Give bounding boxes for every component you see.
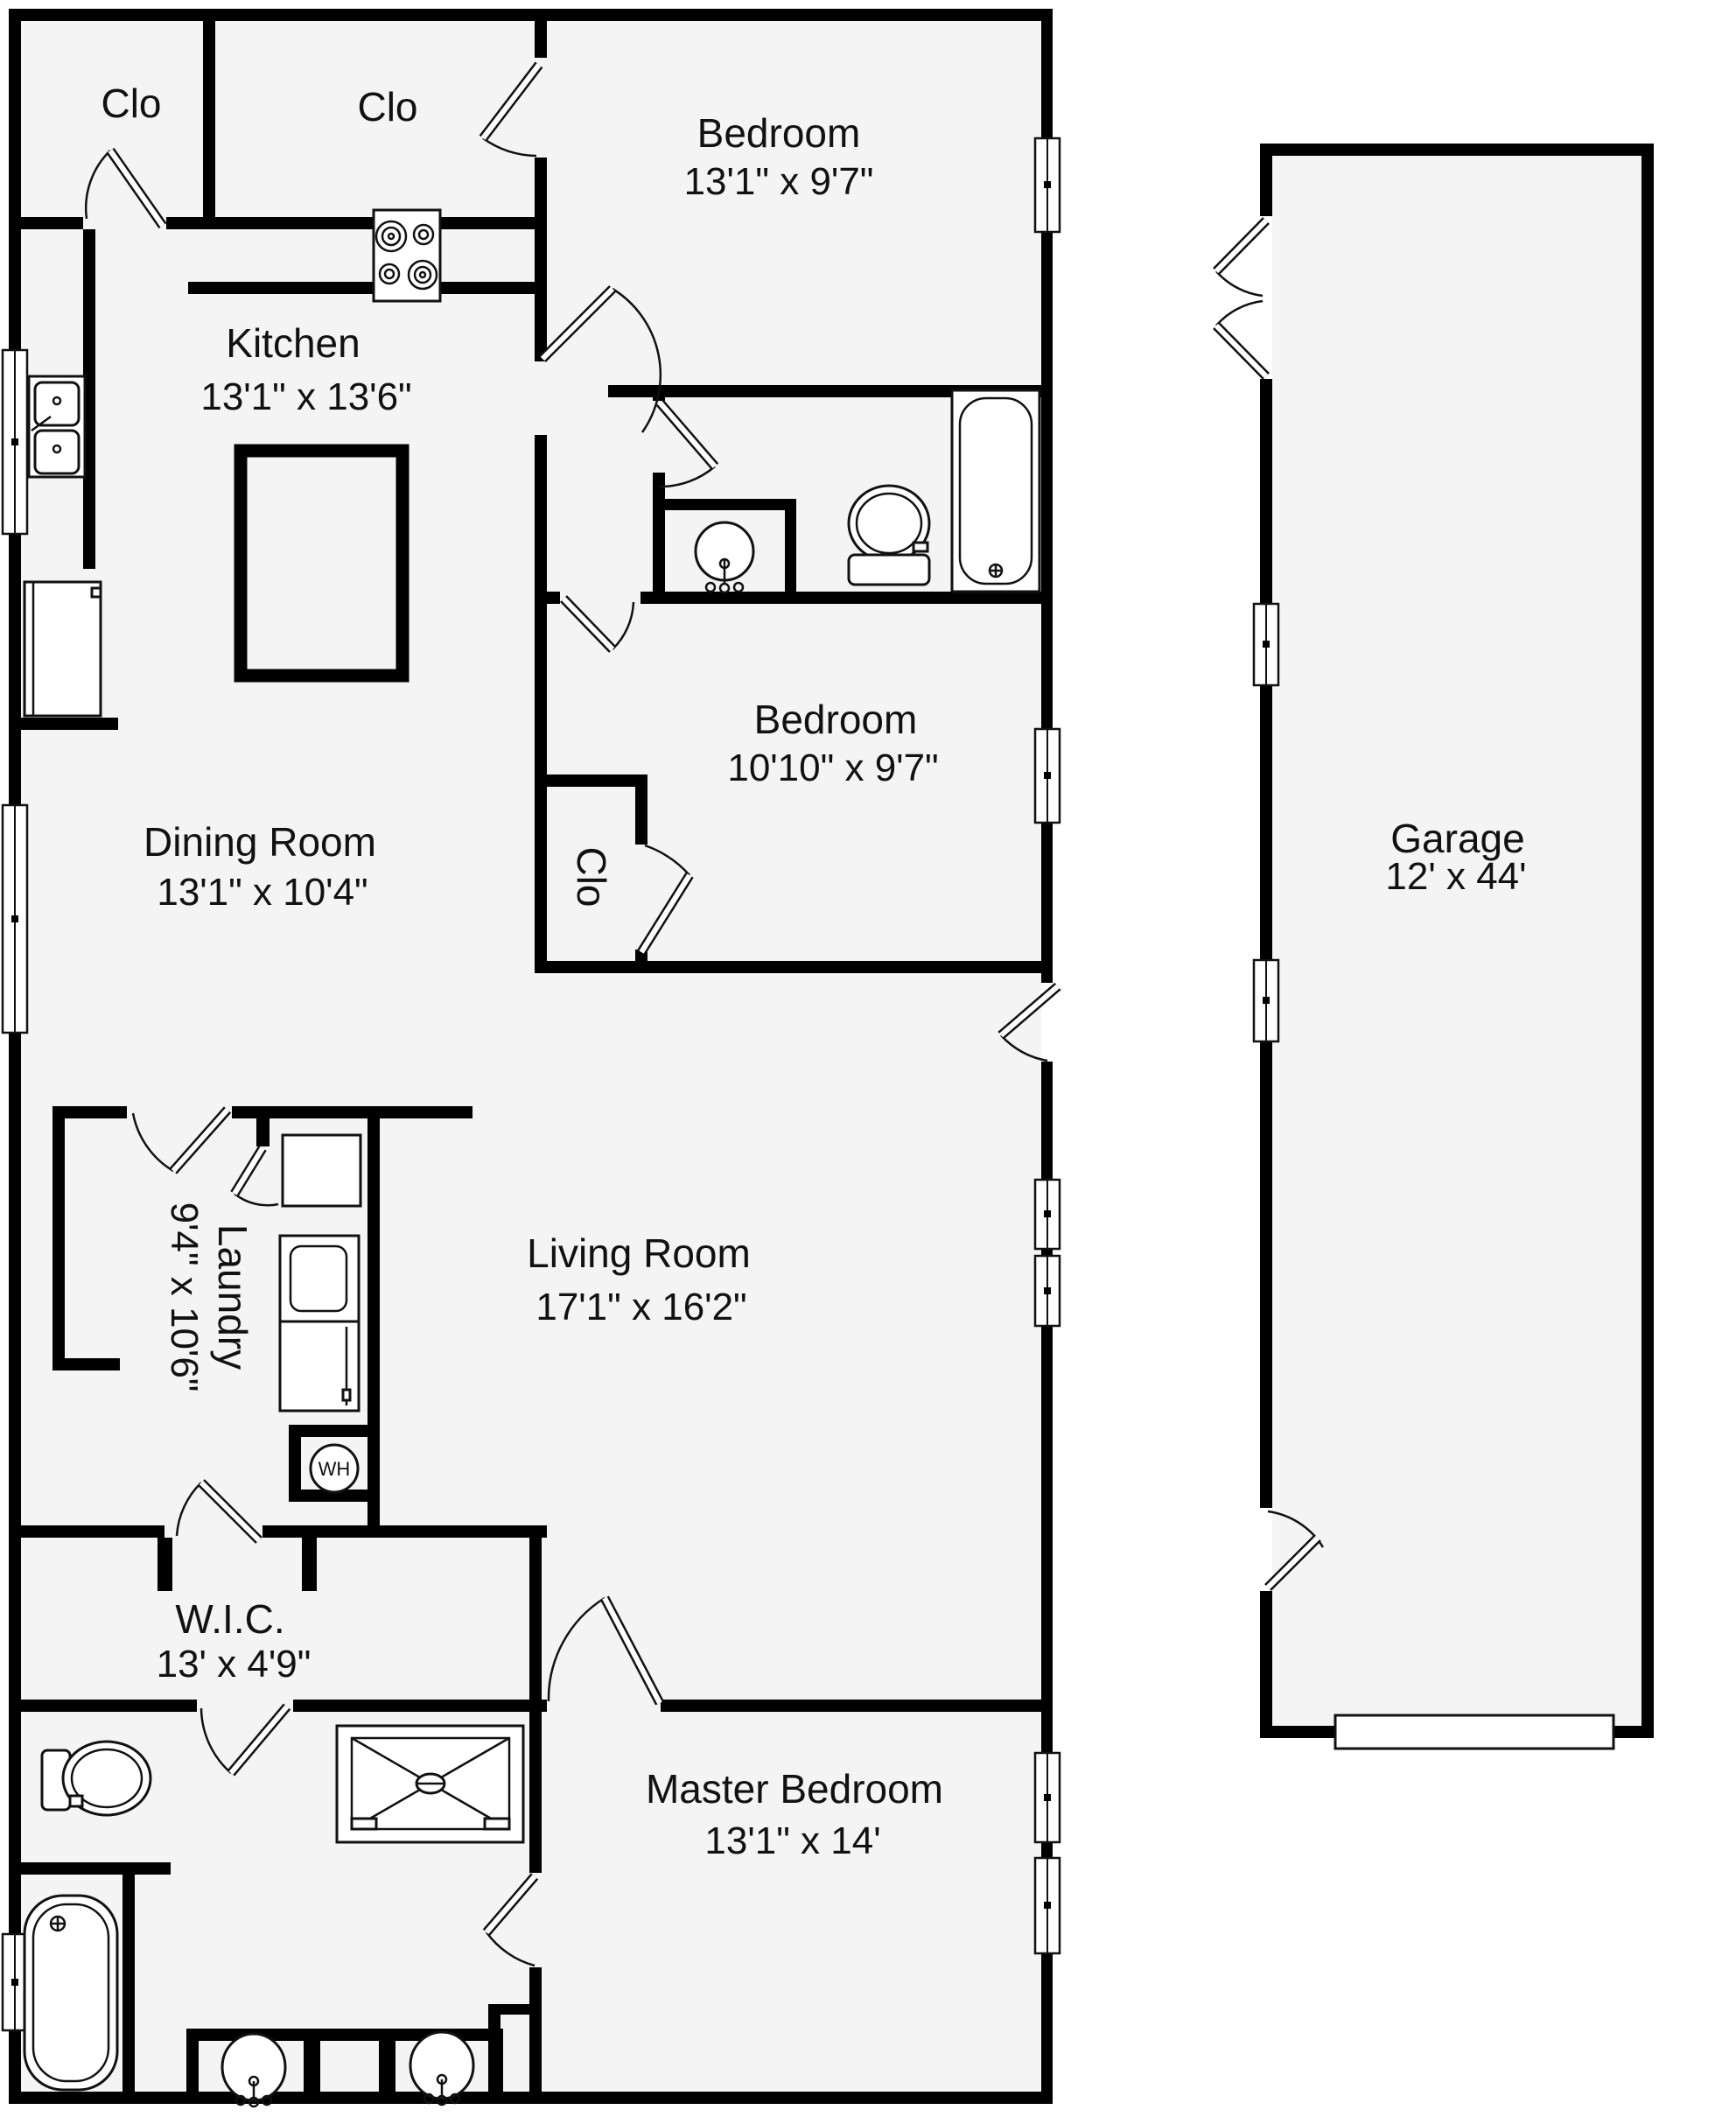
floor-plan-drawing: WH [0,0,1736,2124]
room-dims-bedroom-1: 13'1" x 9'7" [684,160,874,203]
room-dims-bedroom-2: 10'10" x 9'7" [727,747,938,789]
room-label-wic: W.I.C. [175,1596,284,1642]
garage-double-door [1216,221,1266,376]
garage-window-1 [1254,604,1278,685]
room-dims-garage: 12' x 44' [1385,855,1526,898]
room-dims-dining: 13'1" x 10'4" [157,871,367,914]
floor-plan-page: WH [0,0,1736,2124]
room-label-kitchen: Kitchen [226,320,360,366]
room-label-master: Master Bedroom [646,1766,943,1812]
room-dims-laundry: 9'4" x 10'6" [163,1202,206,1392]
kitchen-double-sink [29,376,85,477]
laundry-closet [283,1135,360,1206]
water-heater-label: WH [318,1458,351,1480]
water-heater: WH [311,1445,358,1492]
dining-window [3,805,27,1033]
stove-cooktop [374,210,440,301]
room-dims-living: 17'1" x 16'2" [535,1286,746,1328]
shower [337,1726,523,1842]
room-dims-kitchen: 13'1" x 13'6" [200,375,411,418]
master-window-1 [1035,1753,1060,1842]
room-label-closet-1: Clo [101,81,161,126]
kitchen-window [3,350,27,534]
master-toilet [42,1742,150,1815]
bedroom2-window [1035,729,1060,823]
refrigerator [24,582,101,716]
room-label-closet-2: Clo [357,84,417,130]
room-dims-master: 13'1" x 14' [704,1819,880,1862]
master-window-2 [1035,1858,1060,1953]
stacked-washer-dryer [280,1236,359,1411]
room-label-bedroom-1: Bedroom [697,110,861,156]
room-label-bedroom-2: Bedroom [754,697,918,742]
bedroom1-window [1035,138,1060,232]
room-dims-wic: 13' x 4'9" [157,1643,311,1686]
garage-floor [1260,144,1654,1738]
garage-door-panel [1335,1715,1613,1749]
room-label-laundry: Laundry [210,1224,255,1370]
garage-window-2 [1254,960,1278,1041]
toilet [849,486,929,585]
kitchen-island [241,451,402,676]
room-label-closet-3: Clo [569,846,614,907]
room-label-living: Living Room [527,1230,751,1276]
bathtub [952,390,1039,592]
master-bathtub [24,1896,117,2090]
room-label-dining: Dining Room [143,819,376,865]
room-label-closet-3-group: Clo [569,846,614,907]
living-window-2 [1035,1256,1060,1326]
living-window-1 [1035,1180,1060,1249]
